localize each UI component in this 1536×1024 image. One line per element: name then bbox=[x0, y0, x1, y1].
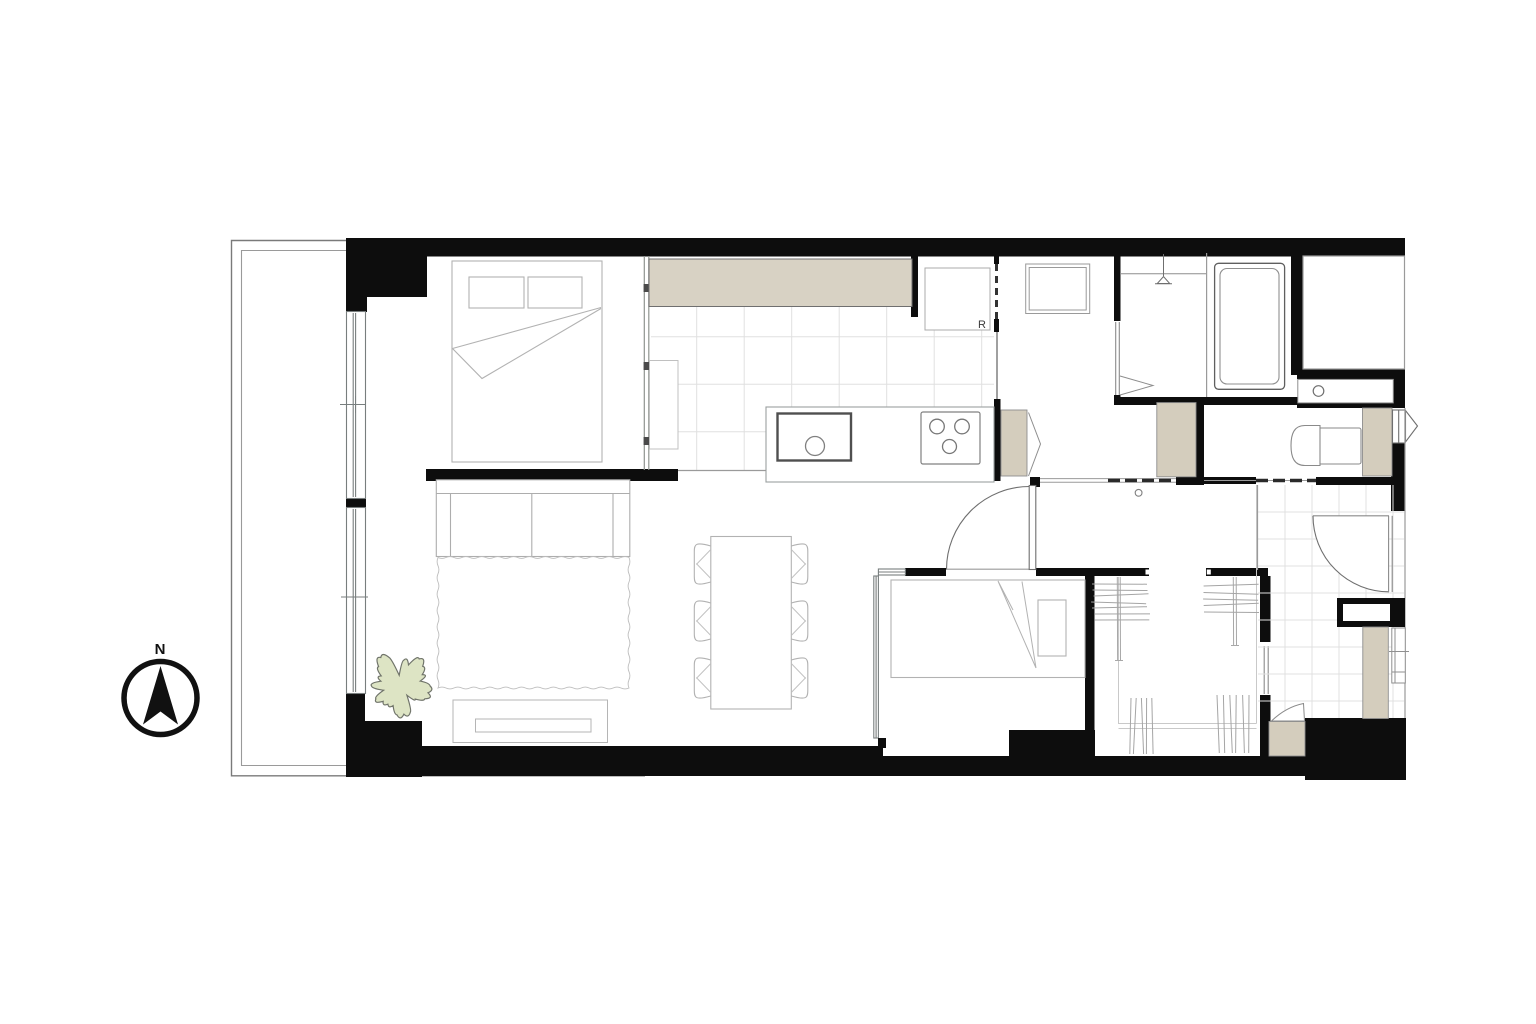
svg-text:N: N bbox=[155, 641, 166, 658]
svg-text:R: R bbox=[978, 319, 986, 331]
